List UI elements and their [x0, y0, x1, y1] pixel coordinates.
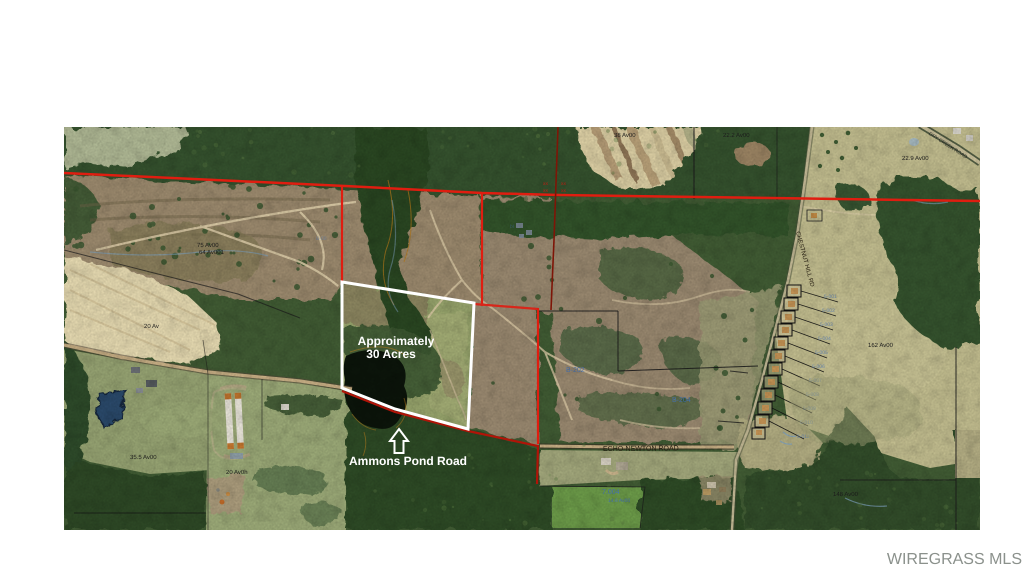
svg-text:WIREGRASS MLS: WIREGRASS MLS [887, 551, 1022, 568]
svg-text:30 Acres: 30 Acres [366, 347, 416, 361]
svg-text:Ammons Pond Road: Ammons Pond Road [349, 454, 467, 468]
svg-text:Approimately: Approimately [358, 334, 435, 348]
